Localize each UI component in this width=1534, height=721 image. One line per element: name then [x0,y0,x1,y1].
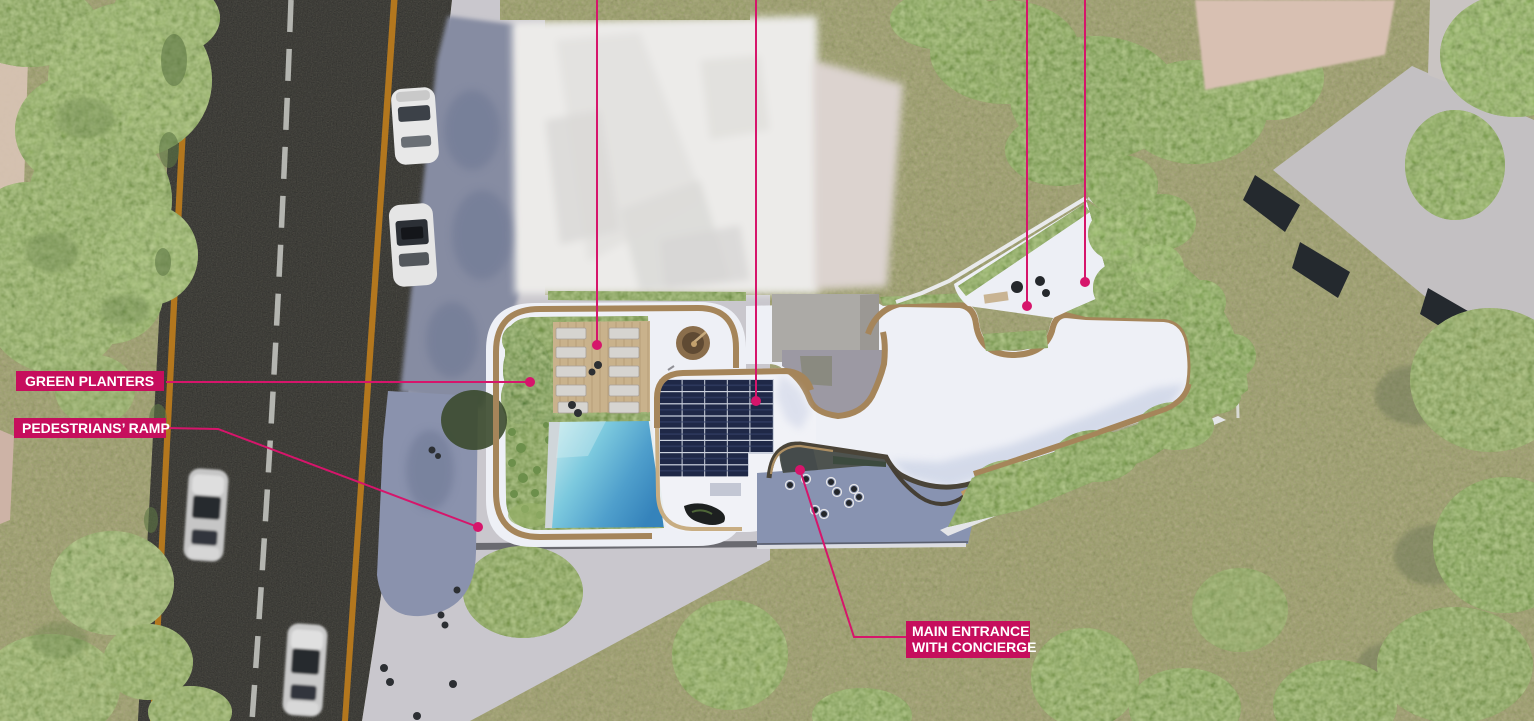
svg-text:GREEN PLANTERS: GREEN PLANTERS [25,373,154,389]
svg-text:WITH CONCIERGE: WITH CONCIERGE [912,639,1036,655]
svg-text:MAIN ENTRANCE: MAIN ENTRANCE [912,623,1029,639]
svg-text:PEDESTRIANS’ RAMP: PEDESTRIANS’ RAMP [22,420,170,436]
